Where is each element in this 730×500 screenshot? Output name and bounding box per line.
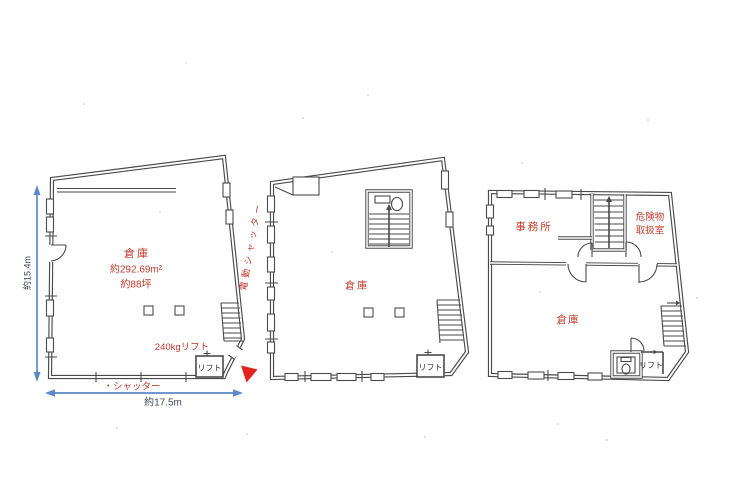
pillar: [144, 306, 153, 315]
floor-plan-left: 倉庫 約292.69m² 約88坪 240kgリフト リフト ・シャッター 電動…: [45, 157, 264, 393]
staircase-block-middle: [367, 191, 411, 247]
staircase-block-right: [592, 193, 625, 250]
office-label: 事務所: [515, 220, 553, 233]
toilet-room: [612, 338, 644, 377]
shutter-bottom-label: ・シャッター: [103, 382, 160, 393]
floorplan-canvas: 倉庫 約292.69m² 約88坪 240kgリフト リフト ・シャッター 電動…: [0, 0, 730, 500]
height-dimension-label: 約15.4m: [22, 256, 33, 290]
lift-capacity-label: 240kgリフト: [155, 342, 209, 353]
lift-box-label-left: リフト: [198, 364, 222, 373]
pillar: [364, 308, 373, 317]
electric-shutter-label: 電動シャッター: [238, 200, 264, 291]
warehouse-label-right: 倉庫: [557, 313, 580, 326]
warehouse-label-middle: 倉庫: [345, 279, 369, 292]
hazmat-label-line1: 危険物: [636, 211, 665, 223]
floor-plan-right: 事務所 危険物 取扱室 倉庫 リフト: [487, 188, 688, 381]
lift-box-label-middle: リフト: [419, 363, 443, 372]
dimension-height: 約15.4m: [22, 185, 41, 382]
pillar: [395, 308, 404, 317]
floor-plan-middle: 倉庫 リフト: [265, 159, 467, 382]
floor-plan-drawing: 倉庫 約292.69m² 約88坪 240kgリフト リフト ・シャッター 電動…: [0, 0, 730, 500]
warehouse-label-left: 倉庫: [124, 246, 150, 260]
area-m2-label: 約292.69m²: [110, 263, 163, 276]
lift-label-right: リフト: [639, 361, 663, 370]
entrance-arrow-icon: [241, 366, 258, 383]
hazmat-label-line2: 取扱室: [636, 225, 665, 237]
width-dimension-label: 約17.5m: [144, 396, 182, 409]
toilet-icon-right: [621, 358, 631, 375]
door-icon: [46, 245, 66, 262]
pillar: [175, 306, 184, 315]
area-tsubo-label: 約88坪: [120, 278, 151, 291]
